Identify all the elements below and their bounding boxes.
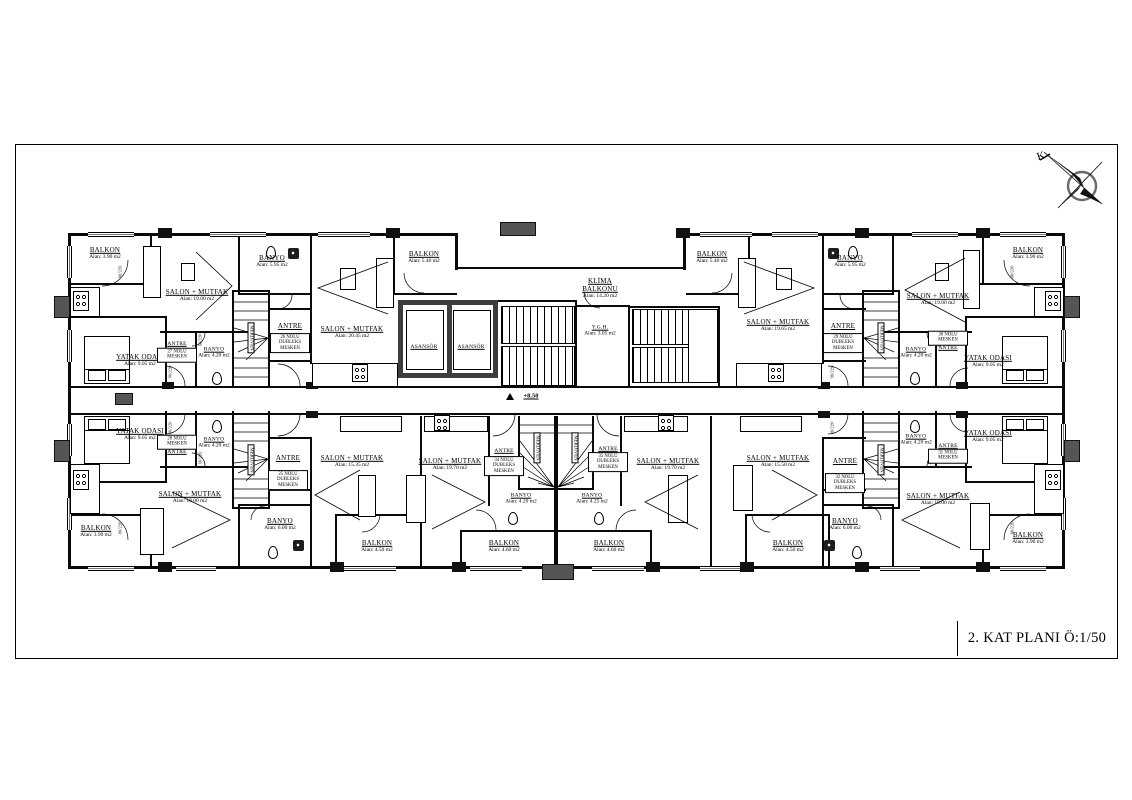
pillow: [88, 419, 106, 430]
room-label-balkon: BALKONAlan: 5.40 m2: [696, 250, 728, 264]
window: [880, 566, 920, 571]
wall: [455, 233, 458, 270]
kitchen-counter: [624, 416, 688, 432]
sofa: [970, 503, 990, 550]
room-label-balkon: BALKONAlan: 3.90 m2: [1012, 531, 1044, 545]
room-label-balkon: BALKONAlan: 4.50 m2: [772, 539, 804, 553]
wall: [310, 437, 312, 566]
window: [1000, 566, 1046, 571]
chimney-shaft: [54, 296, 70, 318]
room-label-banyo: BANYOAlan: 4.25 m2: [576, 493, 608, 506]
unit-number-box: 30 NOLU MESKEN: [928, 331, 968, 346]
elevator-car: [406, 310, 444, 370]
compass-north-letter: K: [1036, 149, 1047, 163]
door-size-tag: 90/220: [830, 366, 835, 379]
room-label-balkon: BALKONAlan: 4.60 m2: [488, 539, 520, 553]
unit-number-box: 27 NOLU MESKEN: [157, 348, 197, 363]
chimney-shaft: [1064, 440, 1080, 462]
room-label-banyo: BANYOAlan: 5.95 m2: [256, 254, 288, 268]
stove-icon: [1045, 470, 1061, 490]
room-label-banyo: BANYOAlan: 4.20 m2: [198, 437, 230, 450]
unit-number-box: 34 NOLU DUBLEKS MESKEN: [484, 456, 524, 476]
wall: [628, 305, 630, 388]
wall: [238, 233, 240, 295]
stair-label: MERDİVEN: [248, 322, 255, 353]
pillow: [1006, 370, 1024, 381]
room-label-balkon: BALKONAlan: 3.90 m2: [1012, 246, 1044, 260]
stove-icon: [1045, 291, 1061, 311]
door-size-tag: 60/220: [198, 334, 203, 347]
window: [772, 232, 818, 237]
stove-icon: [434, 415, 450, 431]
wall: [238, 504, 240, 566]
wall: [568, 530, 652, 532]
stair-label: MERDİVEN: [248, 444, 255, 475]
shaft-tab: [500, 222, 536, 236]
blanket-line: [1003, 369, 1047, 370]
stair-label: MERDİVEN: [878, 444, 885, 475]
unit-number-box: 28 NOLU MESKEN: [157, 435, 197, 450]
sofa: [406, 475, 426, 523]
room-label-banyo: BANYOAlan: 4.20 m2: [505, 493, 537, 506]
wall: [822, 437, 866, 439]
column: [646, 562, 660, 572]
room-label-balkon: BALKONAlan: 4.50 m2: [361, 539, 393, 553]
level-mark: +8.50: [523, 393, 538, 400]
wall: [393, 293, 457, 295]
pillow: [1026, 370, 1044, 381]
door-size-tag: 80/220: [1010, 266, 1015, 279]
wall: [268, 308, 312, 310]
wall: [822, 308, 866, 310]
wall: [965, 316, 967, 388]
room-label-yatak-odasi: YATAK ODASIAlan: 9.05 m2: [964, 354, 1012, 368]
room-label-salon-mutfak: SALON + MUTFAKAlan: 19.00 m2: [159, 490, 222, 504]
wall: [862, 507, 900, 509]
column: [855, 562, 869, 572]
column: [386, 228, 400, 238]
room-label-salon-mutfak: SALON + MUTFAKAlan: 15.35 m2: [321, 454, 384, 468]
room-label-salon-mutfak: SALON + MUTFAKAlan: 19.00 m2: [166, 288, 229, 302]
toilet-icon: [212, 420, 222, 433]
window: [912, 232, 958, 237]
chimney-shaft: [54, 440, 70, 462]
unit-number-box: 26 NOLU DUBLEKS MESKEN: [270, 333, 310, 353]
toilet-icon: [852, 546, 862, 559]
wall: [745, 514, 747, 566]
room-label-balkon: BALKONAlan: 3.90 m2: [80, 524, 112, 538]
room-label-banyo: BANYOAlan: 5.95 m2: [834, 254, 866, 268]
column: [956, 382, 968, 389]
room-label-antre: ANTRE: [278, 322, 302, 330]
door-size-tag: 60/220: [198, 452, 203, 465]
room-label-salon-mutfak: SALON + MUTFAKAlan: 19.65 m2: [747, 318, 810, 332]
window: [88, 232, 134, 237]
room-label-antre: ANTRE: [494, 448, 513, 454]
door-size-tag: 80/220: [118, 266, 123, 279]
wall: [577, 305, 628, 307]
room-label-yatak-odasi: YATAK ODASIAlan: 9.05 m2: [964, 429, 1012, 443]
north-compass-icon: K: [1036, 146, 1110, 216]
room-label-ygh: Y.G.H.Alan: 3.05 m2: [584, 325, 616, 338]
wall-balcony-rail: [455, 267, 686, 269]
room-label-salon-mutfak: SALON + MUTFAKAlan: 19.00 m2: [907, 292, 970, 306]
stair-run: [632, 309, 690, 345]
elevator-label: ASANSÖR: [457, 344, 484, 350]
drawing-title: 2. KAT PLANI Ö:1/50: [957, 621, 1116, 656]
window: [592, 566, 644, 571]
wall: [650, 530, 652, 566]
elevator-shaft-wall: [447, 300, 452, 378]
unit-number-box: 31 NOLU MESKEN: [928, 449, 968, 464]
room-label-antre: ANTRE: [167, 341, 186, 347]
room-label-banyo: BANYOAlan: 6.00 m2: [264, 517, 296, 531]
kitchen-counter: [740, 416, 802, 432]
wall: [630, 306, 720, 308]
room-label-klima-balkonu: KLİMA BALKONUAlan: 14.20 m2: [579, 277, 621, 299]
column: [330, 562, 344, 572]
wall: [335, 514, 337, 566]
washer-icon: [293, 540, 304, 551]
wall: [683, 233, 686, 270]
table: [340, 268, 356, 290]
stove-icon: [768, 364, 784, 382]
wall: [718, 306, 720, 388]
pillow: [88, 370, 106, 381]
room-label-antre: ANTRE: [833, 457, 857, 465]
room-label-salon-mutfak: SALON + MUTFAKAlan: 19.70 m2: [419, 457, 482, 471]
window: [318, 232, 370, 237]
window: [700, 232, 752, 237]
wall: [892, 504, 894, 566]
column: [158, 562, 172, 572]
stair-label: MERDİVEN: [878, 322, 885, 353]
window: [210, 232, 266, 237]
room-label-banyo: BANYOAlan: 6.00 m2: [829, 517, 861, 531]
window: [470, 566, 522, 571]
washer-icon: [824, 540, 835, 551]
wall: [965, 411, 967, 483]
sofa: [358, 475, 376, 517]
stair-run: [501, 306, 575, 344]
room-label-antre: ANTRE: [831, 322, 855, 330]
room-label-antre: ANTRE: [276, 454, 300, 462]
sheet-frame: [15, 144, 1118, 659]
unit-number-box: 35 NOLU DUBLEKS MESKEN: [588, 452, 628, 472]
elevator-shaft-wall: [493, 300, 498, 378]
elevator-label: ASANSÖR: [410, 344, 437, 350]
stair-run: [501, 346, 575, 386]
window: [1000, 232, 1046, 237]
window: [1061, 246, 1066, 278]
elevator-car: [453, 310, 491, 370]
room-label-balkon: BALKONAlan: 5.40 m2: [408, 250, 440, 264]
wall: [460, 530, 546, 532]
wall-corridor: [68, 386, 1065, 388]
toilet-icon: [508, 512, 518, 525]
column: [740, 562, 754, 572]
sofa: [738, 258, 756, 308]
room-label-salon-mutfak: SALON + MUTFAKAlan: 20.45 m2: [321, 325, 384, 339]
toilet-icon: [212, 372, 222, 385]
column: [306, 411, 318, 418]
column: [676, 228, 690, 238]
wall: [745, 514, 830, 516]
stair-run: [632, 347, 690, 383]
window: [67, 246, 72, 278]
sofa: [733, 465, 753, 511]
wall: [822, 360, 866, 362]
door-size-tag: 90/220: [168, 366, 173, 379]
stair-label: MERDİVEN: [572, 432, 579, 463]
column: [818, 411, 830, 418]
window: [88, 566, 134, 571]
shaft-tab: [542, 564, 574, 580]
toilet-icon: [594, 512, 604, 525]
window: [176, 566, 216, 571]
sofa: [140, 508, 164, 555]
wall: [898, 290, 900, 388]
door-size-tag: 80/220: [118, 522, 123, 535]
toilet-icon: [910, 420, 920, 433]
room-label-banyo: BANYOAlan: 4.20 m2: [198, 347, 230, 360]
unit-number-box: 29 NOLU DUBLEKS MESKEN: [823, 333, 863, 353]
column: [115, 393, 133, 405]
column: [158, 228, 172, 238]
wall: [980, 514, 1064, 516]
wall: [268, 411, 270, 509]
pillow: [1026, 419, 1044, 430]
floor-plan-sheet: +8.50 BALKONAlan: 3.90 m2 SALON + MUTFAK…: [0, 0, 1132, 800]
stove-icon: [73, 470, 89, 490]
window: [1061, 330, 1066, 362]
stair-label: MERDİVEN: [534, 432, 541, 463]
wall: [68, 283, 152, 285]
unit-number-box: 32 NOLU DUBLEKS MESKEN: [825, 473, 865, 493]
table: [776, 268, 792, 290]
room-label-antre: ANTRE: [167, 449, 186, 455]
stair-landing: [688, 309, 718, 383]
door-size-tag: 90/220: [168, 422, 173, 435]
wall: [460, 530, 462, 566]
room-label-balkon: BALKONAlan: 4.60 m2: [593, 539, 625, 553]
room-label-banyo: BANYOAlan: 4.20 m2: [900, 347, 932, 360]
wall: [575, 300, 577, 388]
wall: [710, 416, 712, 566]
wall-corridor: [68, 413, 1065, 415]
table: [935, 263, 949, 281]
wall: [982, 233, 984, 285]
stove-icon: [658, 415, 674, 431]
wall: [980, 283, 1064, 285]
window: [67, 330, 72, 362]
kitchen-counter: [340, 416, 402, 432]
column: [162, 382, 174, 389]
column: [452, 562, 466, 572]
wall: [898, 411, 900, 509]
room-label-banyo: BANYOAlan: 4.20 m2: [900, 434, 932, 447]
sofa: [376, 258, 394, 308]
toilet-icon: [268, 546, 278, 559]
sofa: [668, 475, 688, 523]
wall: [268, 360, 312, 362]
room-label-salon-mutfak: SALON + MUTFAKAlan: 19.00 m2: [907, 492, 970, 506]
room-label-antre: ANTRE: [938, 345, 957, 351]
unit-number-box: 25 NOLU DUBLEKS MESKEN: [268, 470, 308, 490]
room-label-salon-mutfak: SALON + MUTFAKAlan: 15.50 m2: [747, 454, 810, 468]
room-label-salon-mutfak: SALON + MUTFAKAlan: 19.70 m2: [637, 457, 700, 471]
column: [956, 411, 968, 418]
elevator-shaft-wall: [398, 300, 403, 378]
column: [855, 228, 869, 238]
toilet-icon: [910, 372, 920, 385]
stove-icon: [352, 364, 368, 382]
wall: [498, 300, 577, 302]
stove-icon: [73, 291, 89, 311]
wall: [310, 233, 312, 364]
door-size-tag: 90/220: [830, 422, 835, 435]
blanket-line: [85, 369, 129, 370]
sofa: [143, 246, 161, 298]
pillow: [108, 370, 126, 381]
wall: [892, 233, 894, 295]
chimney-shaft: [1064, 296, 1080, 318]
window: [340, 566, 396, 571]
room-label-balkon: BALKONAlan: 3.90 m2: [89, 246, 121, 260]
column: [976, 228, 990, 238]
table: [181, 263, 195, 281]
wall: [268, 437, 312, 439]
washer-icon: [288, 248, 299, 259]
column: [976, 562, 990, 572]
